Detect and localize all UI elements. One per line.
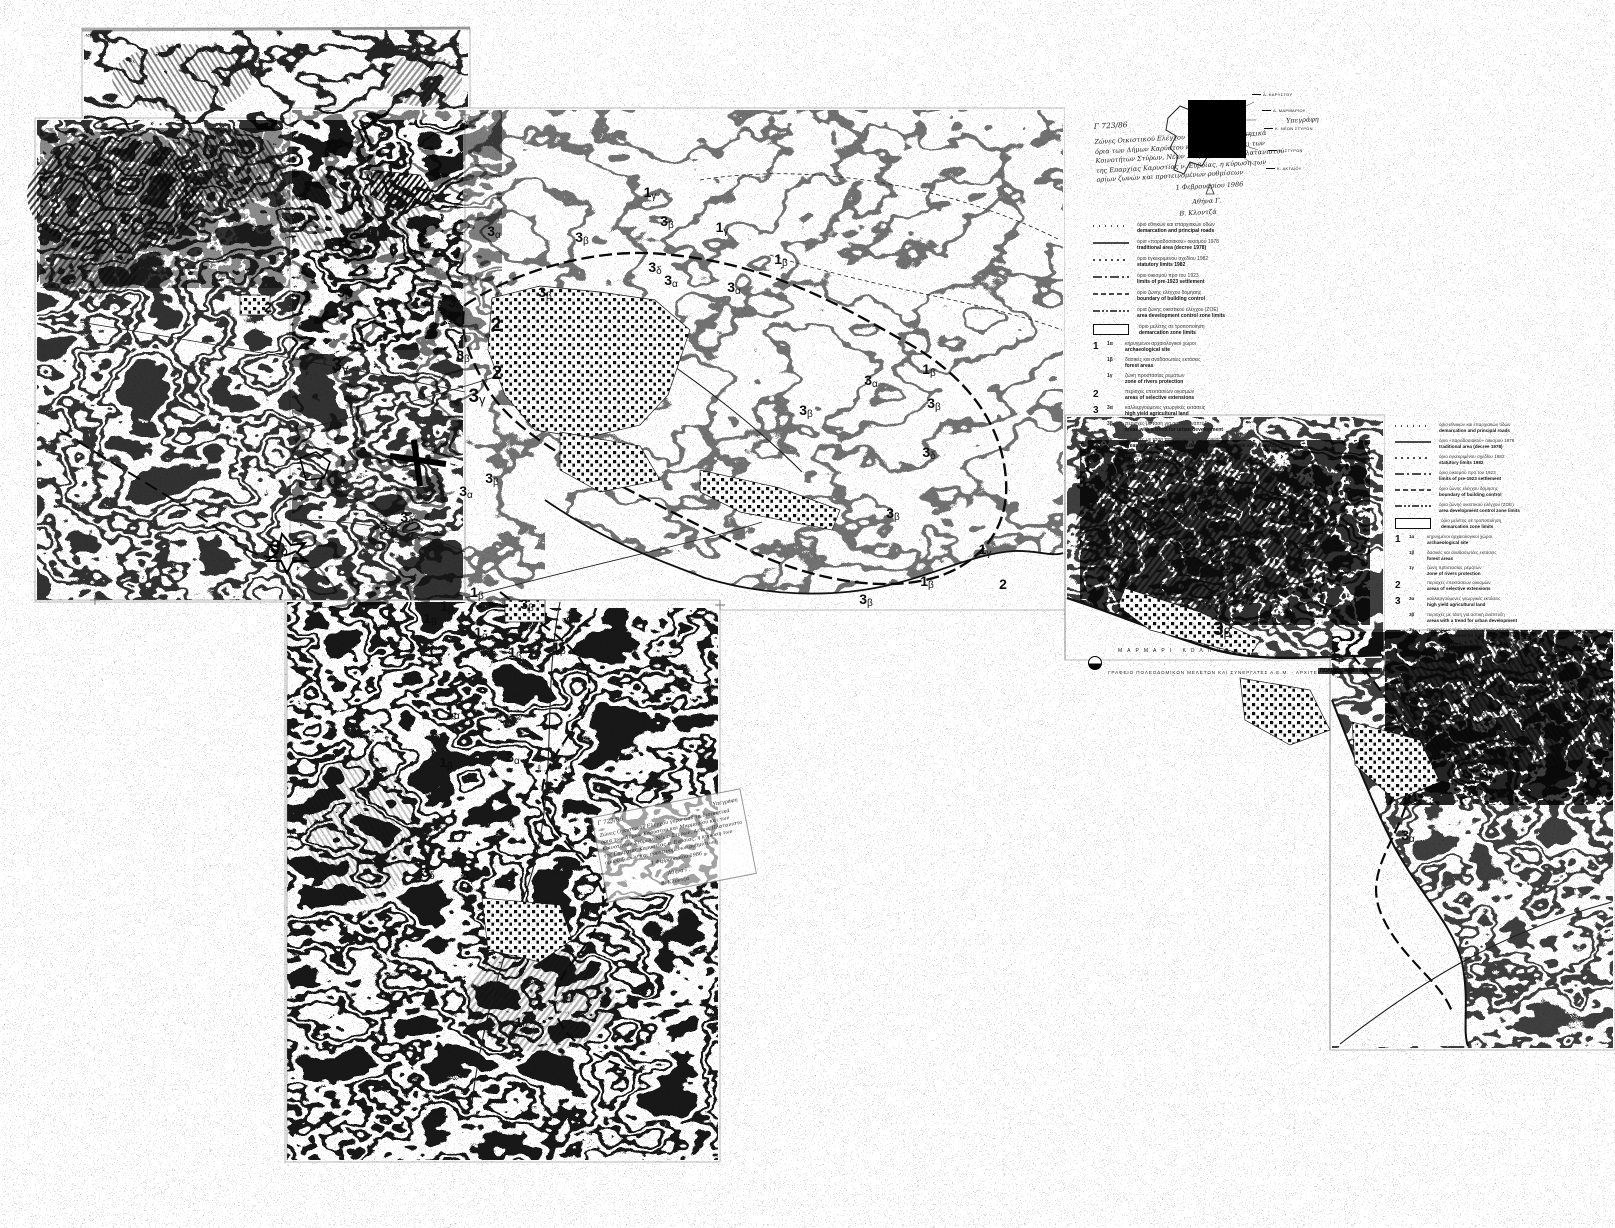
legend-line-item: όριο εγκεκριμένου σχεδίου 1982statutory … [1093,256,1331,268]
legend-line-symbol [1093,223,1129,229]
inset-label: Δ. ΜΑΡΜΑΡΙΟΥ [1262,108,1306,113]
legend-numbered-item: 3 3α καλλιεργούμενες γεωργικές εκτάσειςh… [1395,596,1613,608]
legend-numbered-item: 2 περιοχές επεκτάσεων οικισμώνareas of s… [1093,389,1331,401]
legend-line-item: όριο εγκεκριμένου σχεδίου 1982statutory … [1395,454,1613,465]
legend-line-item: όριο εθνικών και επαρχιακών οδώνdemarcat… [1395,422,1613,433]
legend-numbered-item: 3β περιοχές με τάση για αστική ανάπτυξηa… [1093,421,1331,433]
legend-numbered-item: 3 3α καλλιεργούμενες γεωργικές εκτάσειςh… [1093,405,1331,417]
legend-line-item: όρια ζώνης οικιστικού ελέγχου (ΖΟΕ)area … [1093,307,1331,319]
inset-label: Κ. ΣΤΥΡΩΝ [1268,148,1303,153]
legend-right: όριο εθνικών και επαρχιακών οδώνdemarcat… [1395,422,1613,657]
legend-line-item: όριο ζώνης ελέγχου δόμησηςboundary of bu… [1395,486,1613,497]
legend-numbered-item: 2 περιοχές επεκτάσεων οικισμώνareas of s… [1395,580,1613,592]
legend-line-item: όριο οικισμού προ του 1923limits of pre-… [1093,273,1331,285]
legend-line-symbol [1093,308,1129,314]
legend-line-items: όριο εθνικών και επαρχιακών οδώνdemarcat… [1395,422,1613,513]
scan-speckle [0,0,1615,1228]
legend-line-symbol [1395,503,1431,509]
legend-box-item: όριο μελέτης σε τροποποίηση demarcation … [1093,324,1331,336]
legend-numbered-items: 1 1α κηρυγμένοι αρχαιολογικοί χώροιarcha… [1093,341,1331,465]
legend-line-symbol [1395,455,1431,461]
legend-numbered-item: 1 1α κηρυγμένοι αρχαιολογικοί χώροιarcha… [1395,534,1613,546]
legend-line-symbol [1395,487,1431,493]
legend-numbered-item: 3δ υπόλοιπες γεωργικές εκτάσειςagricultu… [1093,453,1331,465]
legend-numbered-item: 1 1α κηρυγμένοι αρχαιολογικοί χώροιarcha… [1093,341,1331,353]
legend-numbered-item: 3δ υπόλοιπες γεωργικές εκτάσειςagricultu… [1395,642,1613,653]
credit-stamp-text: ΠΟΛΕΟΔΟΜΙΚΗ ΜΕΛΕΤΗ [1318,668,1382,674]
inset-label: Κ. ΝΕΩΝ ΣΤΥΡΩΝ [1264,126,1313,131]
legend-line-symbol [1093,291,1129,297]
legend-box-item: όριο μελέτης σε τροποποίηση demarcation … [1395,518,1613,529]
map-canvas: 1γ 3α 3β 1γ 3β 3δ 1β 3α 3α 2 3β 3α 3β 2 … [0,0,1615,1228]
legend-line-symbol [1093,257,1129,263]
north-arrow-icon [1206,184,1214,194]
legend-line-items: όριο εθνικών και επαρχιακών οδώνdemarcat… [1093,222,1331,319]
legend-line-item: όρια ζώνης οικιστικού ελέγχου (ΖΟΕ)area … [1395,502,1613,513]
legend-line-symbol [1395,423,1431,429]
inset-label: Δ. ΚΑΡΥΣΤΟΥ [1252,92,1292,97]
inset-study-area-square [1188,100,1246,158]
legend-numbered-item: 1γ ζώνη προστασίας ρεμάτωνzone of rivers… [1395,565,1613,576]
legend-box-symbol [1093,324,1129,335]
legend-numbered-items: 1 1α κηρυγμένοι αρχαιολογικοί χώροιarcha… [1395,534,1613,653]
inset-island-outline [1140,86,1330,206]
office-logo-icon [1088,656,1102,670]
topo-artwork [0,0,1615,1228]
inset-key-map: Δ. ΚΑΡΥΣΤΟΥΔ. ΜΑΡΜΑΡΙΟΥΚ. ΝΕΩΝ ΣΤΥΡΩΝΚ. … [1140,86,1330,206]
legend-numbered-item: 1β δασικές και αναδασωτέες εκτάσειςfores… [1395,550,1613,561]
legend-line-item: όριο «παραδοσιακού» οικισμού 1978traditi… [1093,239,1331,251]
legend-numbered-item: 3γ περιοχές με τάση παραθεριστικής κατοι… [1093,437,1331,449]
legend-top: όριο εθνικών και επαρχιακών οδώνdemarcat… [1093,222,1331,469]
legend-numbered-item: 3γ περιοχές με τάση παραθεριστικής κατοι… [1395,627,1613,638]
legend-line-symbol [1395,439,1431,445]
inset-label: Κ. ΑΚΤΑΙΟΥ [1266,166,1302,171]
legend-numbered-item: 1γ ζώνη προστασίας ρεμάτωνzone of rivers… [1093,373,1331,385]
legend-numbered-item: 1β δασικές και αναδασωτέες εκτάσειςfores… [1093,357,1331,369]
legend-line-symbol [1395,471,1431,477]
legend-line-symbol [1093,274,1129,280]
legend-line-symbol [1093,240,1129,246]
legend-numbered-item: 3β περιοχές με τάση για αστική ανάπτυξηa… [1395,612,1613,623]
legend-line-item: όριο ζώνης ελέγχου δόμησηςboundary of bu… [1093,290,1331,302]
credit-firm-text: ΓΡΑΦΕΙΟ ΠΟΛΕΟΔΟΜΙΚΩΝ ΜΕΛΕΤΩΝ ΚΑΙ ΣΥΝΕΡΓΑ… [1108,670,1342,675]
legend-line-item: όριο οικισμού προ του 1923limits of pre-… [1395,470,1613,481]
legend-line-item: όριο «παραδοσιακού» οικισμού 1978traditi… [1395,438,1613,449]
legend-line-item: όριο εθνικών και επαρχιακών οδώνdemarcat… [1093,222,1331,234]
gulf-name-label: ΜΑΡΜΑΡΙ ΚΟΛΠΟΣ [1118,648,1233,654]
legend-box-symbol [1395,518,1431,529]
